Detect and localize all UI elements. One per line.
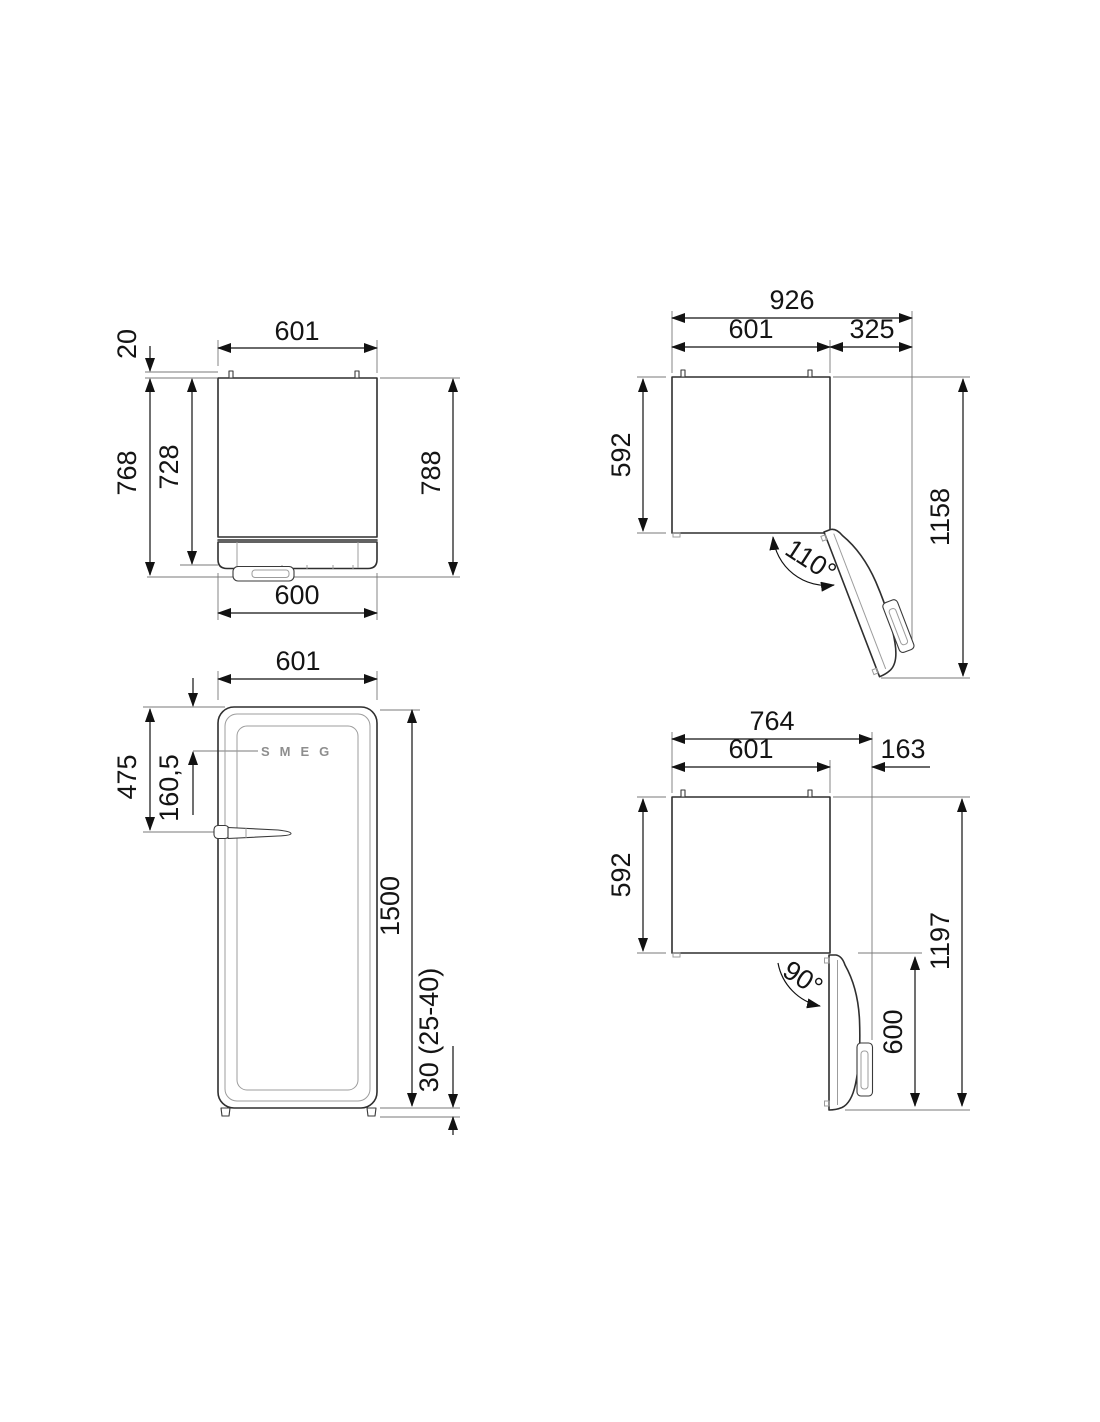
door-face-seam bbox=[237, 726, 358, 1090]
door-edge-seam bbox=[225, 714, 370, 1101]
cabinet-top-outline-110 bbox=[672, 377, 830, 533]
cabinet-top-outline-90 bbox=[672, 797, 830, 953]
door-handle-top bbox=[233, 567, 294, 582]
cabinet-top-outline bbox=[218, 378, 377, 537]
view-front: 601 475 160,5 1500 30 (25-40) SMEG bbox=[112, 646, 460, 1135]
dim-label-depth-overall-90: 1197 bbox=[925, 912, 955, 970]
smeg-logo: SMEG bbox=[261, 744, 339, 759]
dim-width-door: 600 bbox=[218, 580, 377, 613]
dim-width-body-110: 601 bbox=[672, 314, 830, 347]
dim-label-depth-no-handle: 768 bbox=[112, 450, 142, 495]
dim-label-width-body-110: 601 bbox=[728, 314, 773, 344]
hinge-pin-right bbox=[355, 371, 359, 378]
dim-label-front-width: 601 bbox=[275, 646, 320, 676]
door-handle-front bbox=[214, 826, 291, 839]
dim-depth-body-110: 592 bbox=[606, 379, 643, 531]
dim-label-height: 1500 bbox=[375, 876, 405, 936]
view-top-open-110: 926 601 325 592 1158 110° bbox=[606, 285, 970, 678]
dim-top-to-handle: 475 bbox=[112, 709, 150, 830]
dim-label-top-to-handle: 475 bbox=[112, 754, 142, 799]
dim-width-top: 601 bbox=[218, 316, 377, 348]
dim-height: 1500 bbox=[375, 710, 412, 1106]
dim-depth-overall-110: 1158 bbox=[925, 379, 963, 676]
dim-label-side-extra-110: 325 bbox=[849, 314, 894, 344]
view-top-open-90: 764 601 163 592 1197 600 90° bbox=[606, 706, 970, 1110]
foot-left bbox=[221, 1108, 230, 1116]
dim-rear-gap: 20 bbox=[112, 329, 150, 371]
dim-label-door-width-90: 600 bbox=[878, 1009, 908, 1054]
open-door-110 bbox=[820, 516, 920, 678]
hinge-pin-left-110 bbox=[681, 370, 685, 377]
dim-label-width-body-90: 601 bbox=[728, 734, 773, 764]
hinge-pin-left-90 bbox=[681, 790, 685, 797]
dim-label-depth-body: 728 bbox=[154, 444, 184, 489]
dim-label-door-angle-90: 90° bbox=[778, 955, 829, 1002]
open-door-90 bbox=[825, 955, 873, 1110]
fridge-dimension-drawing: 601 20 768 728 788 600 bbox=[0, 0, 1100, 1422]
hinge-pin-right-110 bbox=[808, 370, 812, 377]
dim-label-top-to-logo: 160,5 bbox=[154, 754, 184, 822]
dim-top-to-logo: 160,5 bbox=[154, 678, 193, 822]
dim-label-rear-gap: 20 bbox=[112, 329, 142, 359]
dim-label-depth-body-110: 592 bbox=[606, 432, 636, 477]
dim-label-depth-body-90: 592 bbox=[606, 852, 636, 897]
dim-depth-body-90: 592 bbox=[606, 799, 643, 951]
dim-depth-overall: 788 bbox=[416, 379, 453, 575]
dim-label-feet-height: 30 (25-40) bbox=[414, 968, 444, 1093]
view-top-closed: 601 20 768 728 788 600 bbox=[112, 316, 460, 620]
dim-label-width-overall-90: 764 bbox=[749, 706, 794, 736]
hinge-pin-right-90 bbox=[808, 790, 812, 797]
dim-label-width-overall-110: 926 bbox=[769, 285, 814, 315]
dim-depth-no-handle: 768 bbox=[112, 379, 150, 575]
dim-side-extra-110: 325 bbox=[830, 314, 912, 347]
dim-door-width-90: 600 bbox=[878, 957, 915, 1106]
dim-label-depth-overall-110: 1158 bbox=[925, 488, 955, 546]
foot-right bbox=[367, 1108, 376, 1116]
dim-front-width: 601 bbox=[218, 646, 377, 679]
dim-label-width-top: 601 bbox=[274, 316, 319, 346]
dim-feet-height: 30 (25-40) bbox=[414, 968, 453, 1135]
fridge-front-outline bbox=[218, 707, 377, 1108]
dim-depth-body: 728 bbox=[154, 379, 192, 564]
diagram-page: 601 20 768 728 788 600 bbox=[0, 0, 1100, 1422]
door-closed-top bbox=[218, 542, 377, 569]
dim-label-depth-overall: 788 bbox=[416, 450, 446, 495]
dim-handle-projection-90: 163 bbox=[872, 734, 930, 767]
dim-label-handle-projection-90: 163 bbox=[880, 734, 925, 764]
dim-label-width-door: 600 bbox=[274, 580, 319, 610]
dim-depth-overall-90: 1197 bbox=[925, 799, 962, 1106]
hinge-pin-left bbox=[229, 371, 233, 378]
